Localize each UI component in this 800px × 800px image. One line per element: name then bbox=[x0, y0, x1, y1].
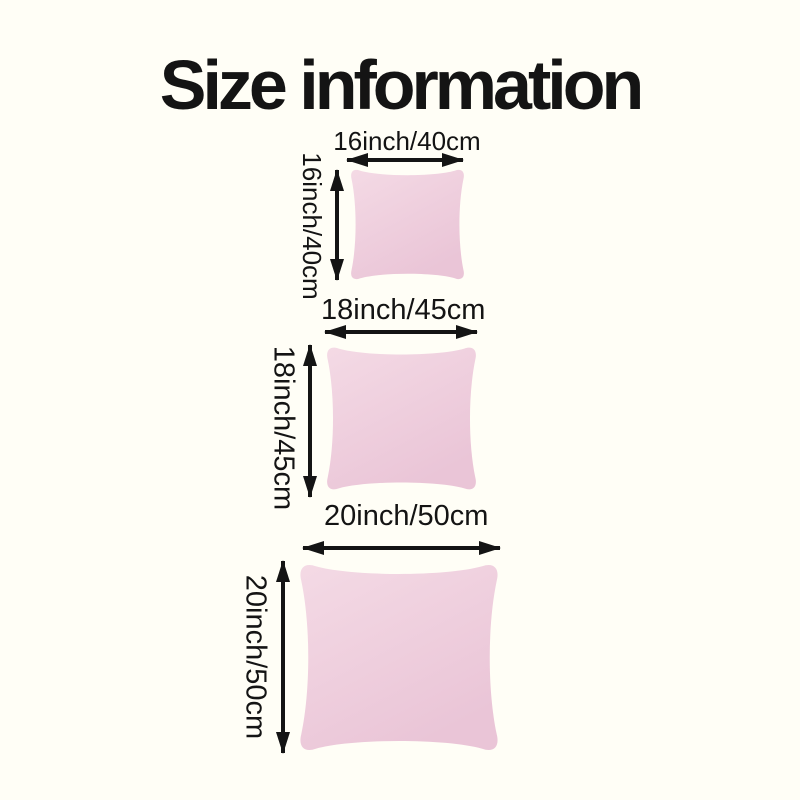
page-title: Size information bbox=[0, 50, 800, 120]
width-dimension-label-20: 20inch/50cm bbox=[324, 502, 486, 531]
height-dimension-label-20: 20inch/50cm bbox=[241, 575, 270, 739]
width-dimension-arrow-20 bbox=[303, 546, 500, 550]
size-information-panel: Size information 16inch/40cm 16inch/40cm… bbox=[0, 0, 800, 800]
height-dimension-label-16: 16inch/40cm bbox=[299, 152, 325, 299]
width-dimension-arrow-18 bbox=[325, 330, 477, 334]
height-dimension-arrow-18 bbox=[308, 345, 312, 497]
pillow-illustration-18 bbox=[323, 340, 480, 497]
width-dimension-arrow-16 bbox=[347, 158, 463, 162]
height-dimension-label-18: 18inch/45cm bbox=[269, 346, 298, 510]
width-dimension-label-16: 16inch/40cm bbox=[327, 128, 487, 154]
height-dimension-arrow-16 bbox=[335, 170, 339, 280]
width-dimension-label-18: 18inch/45cm bbox=[321, 296, 481, 325]
pillow-illustration-16 bbox=[348, 164, 467, 285]
height-dimension-arrow-20 bbox=[281, 561, 285, 753]
pillow-illustration-20 bbox=[295, 555, 503, 760]
